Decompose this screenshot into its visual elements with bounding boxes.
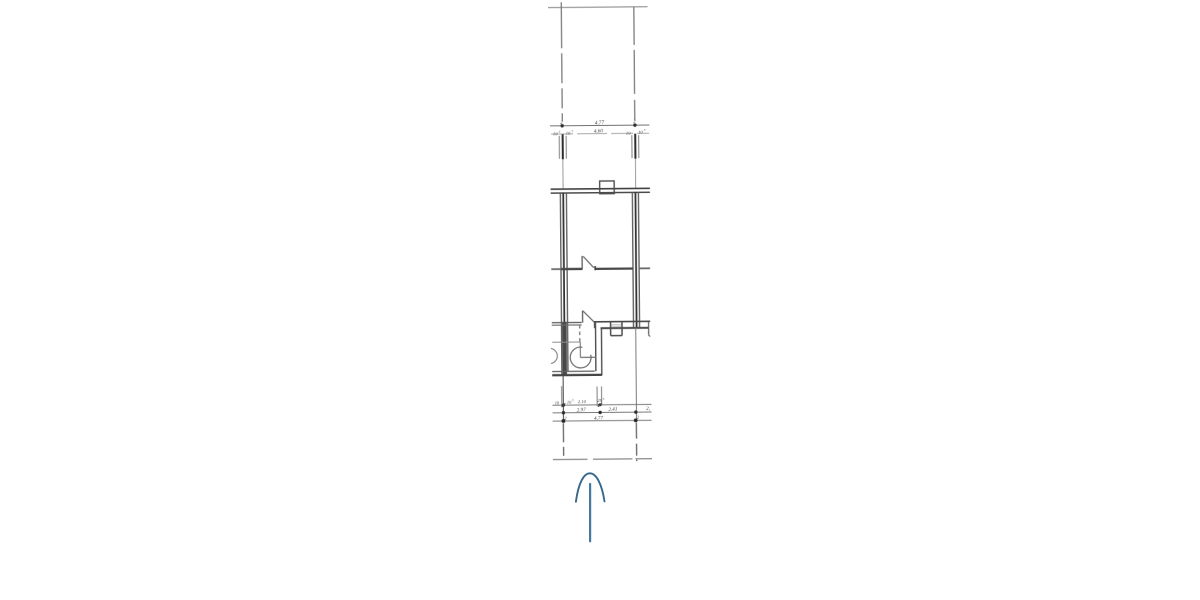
svg-text:5: 5: [559, 130, 561, 134]
svg-text:2.97: 2.97: [577, 407, 587, 414]
svg-text:2.10: 2.10: [578, 399, 587, 404]
svg-text:10: 10: [566, 131, 571, 136]
svg-text:5: 5: [644, 128, 646, 132]
svg-text:4.77: 4.77: [594, 414, 604, 422]
svg-text:10: 10: [626, 130, 631, 135]
svg-text:2: 2: [564, 416, 567, 421]
svg-text:4.77: 4.77: [595, 120, 605, 127]
svg-text:2.41: 2.41: [608, 405, 618, 413]
svg-text:10: 10: [638, 130, 643, 135]
svg-text:2: 2: [637, 414, 640, 419]
svg-text:5: 5: [571, 129, 573, 133]
svg-text:5: 5: [603, 397, 605, 401]
svg-text:10: 10: [553, 132, 558, 137]
svg-text:2: 2: [633, 119, 636, 124]
svg-text:2,: 2,: [646, 406, 650, 412]
svg-text:5: 5: [572, 398, 574, 402]
svg-text:4.60: 4.60: [594, 127, 604, 135]
svg-text:10: 10: [555, 400, 560, 405]
